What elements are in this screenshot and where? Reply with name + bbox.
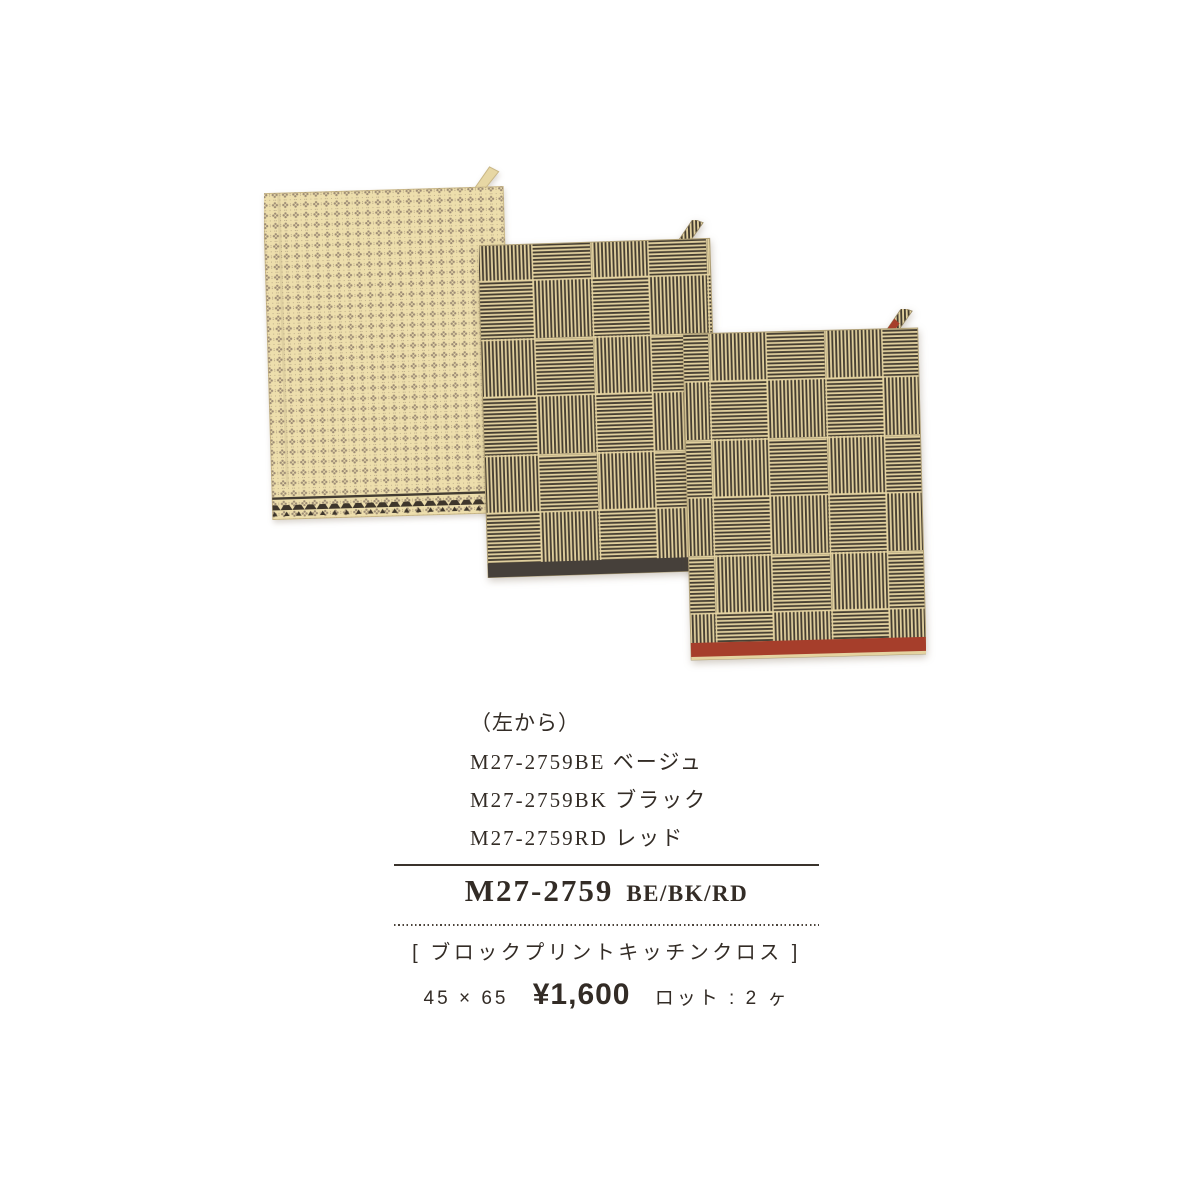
caption-from-left: （左から） bbox=[470, 705, 707, 743]
catalog-page: （左から） M27-2759BE ベージュ M27-2759BK ブラック M2… bbox=[0, 0, 1200, 1200]
product-info-block: M27-2759 BE/BK/RD [ ブロックプリントキッチンクロス ] 45… bbox=[394, 864, 819, 1019]
product-code: M27-2759 bbox=[465, 873, 614, 908]
product-specs: 45 × 65 ¥1,600 ロット : 2 ヶ bbox=[394, 975, 819, 1019]
divider-dotted bbox=[394, 924, 819, 926]
product-photo-group bbox=[0, 0, 1200, 700]
caption-line-black: M27-2759BK ブラック bbox=[470, 781, 707, 819]
product-code-line: M27-2759 BE/BK/RD bbox=[394, 872, 819, 916]
cloth-body bbox=[683, 328, 926, 660]
product-name: [ ブロックプリントキッチンクロス ] bbox=[394, 939, 819, 967]
caption-line-red: M27-2759RD レッド bbox=[470, 819, 707, 857]
divider-solid bbox=[394, 864, 819, 866]
product-size: 45 × 65 bbox=[424, 988, 509, 1009]
product-lot: ロット : 2 ヶ bbox=[655, 988, 790, 1009]
color-caption-list: （左から） M27-2759BE ベージュ M27-2759BK ブラック M2… bbox=[470, 705, 707, 857]
product-price: ¥1,600 bbox=[533, 978, 631, 1011]
caption-line-beige: M27-2759BE ベージュ bbox=[470, 743, 707, 781]
product-photo-red-cloth bbox=[683, 309, 926, 661]
product-photo-beige-cloth bbox=[264, 166, 512, 520]
product-color-codes: BE/BK/RD bbox=[626, 881, 748, 906]
